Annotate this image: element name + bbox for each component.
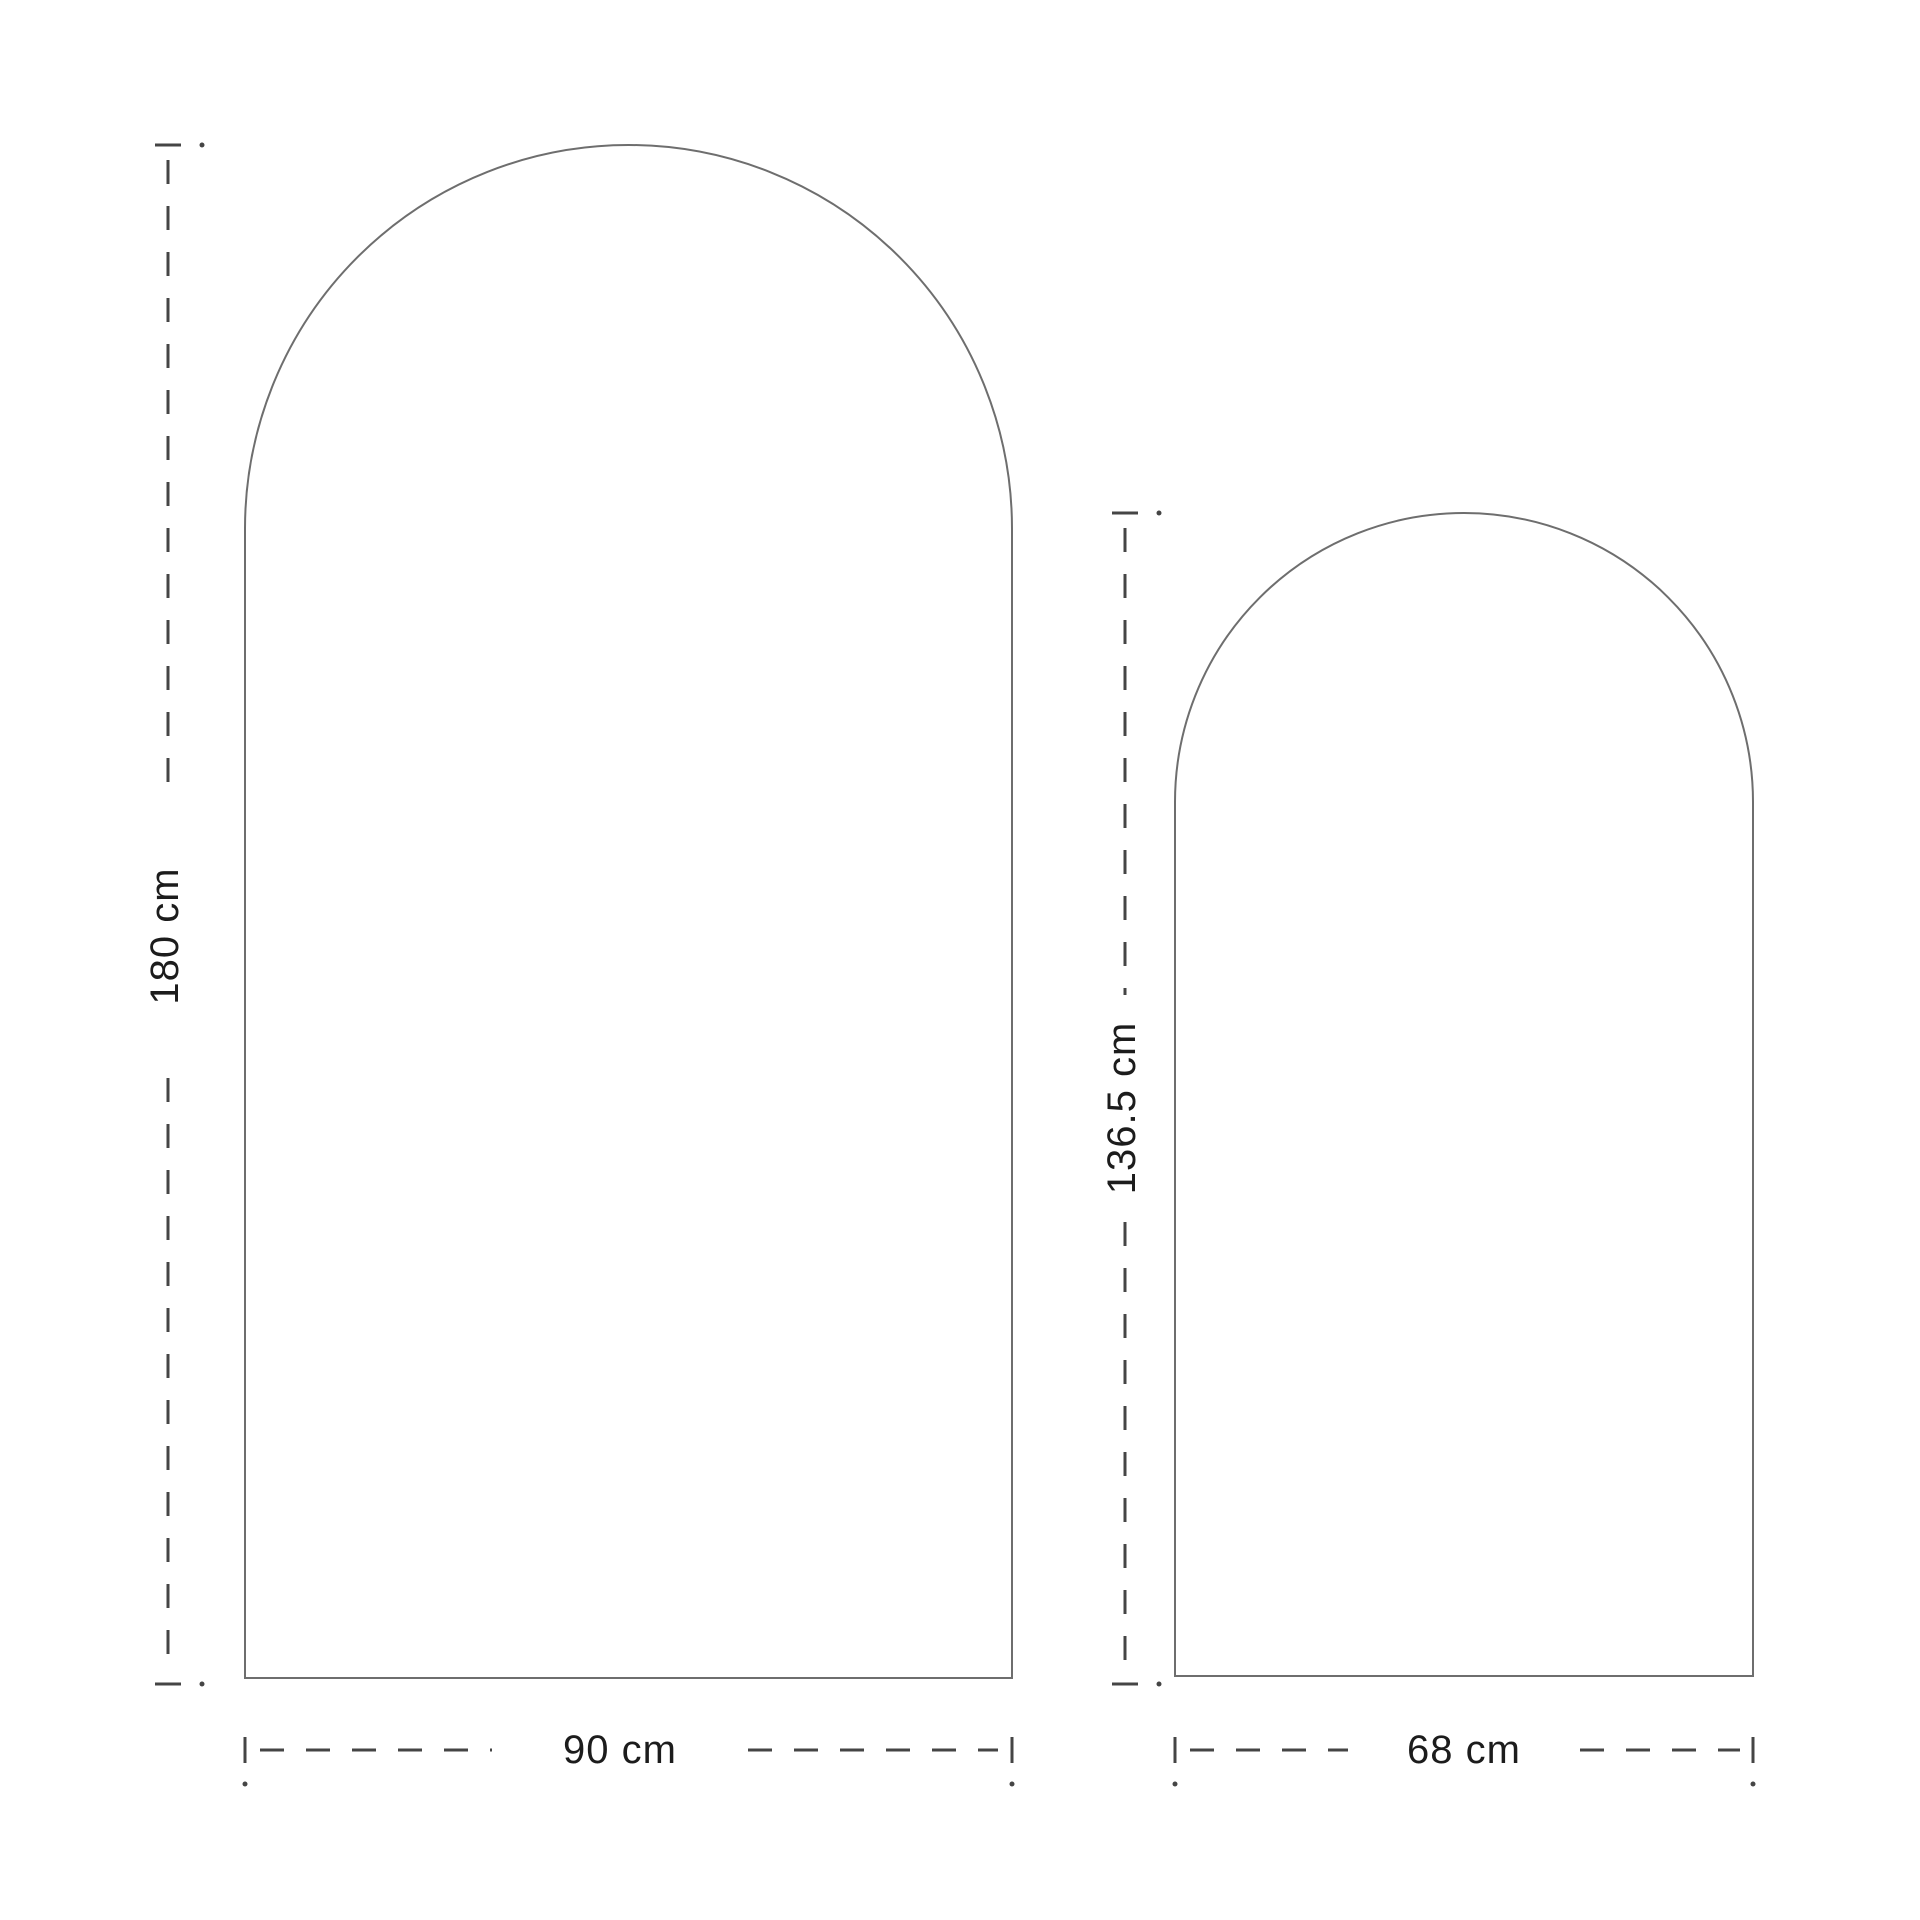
dim-cap-dot [1157, 1682, 1162, 1687]
diagram-svg: 180 cm 136.5 cm 90 cm [0, 0, 1920, 1920]
small-arch-height-dimension: 136.5 cm [1100, 511, 1162, 1687]
large-arch-width-dimension: 90 cm [243, 1728, 1015, 1787]
dim-cap-dot [243, 1782, 248, 1787]
dim-cap-dot [200, 143, 205, 148]
dimension-diagram: 180 cm 136.5 cm 90 cm [0, 0, 1920, 1920]
dim-cap-dot [1157, 511, 1162, 516]
large-arch-height-dimension: 180 cm [143, 143, 205, 1687]
small-arch-height-label: 136.5 cm [1100, 1022, 1144, 1195]
large-arch-width-label: 90 cm [563, 1728, 677, 1772]
dim-cap-dot [1751, 1782, 1756, 1787]
small-arch-width-dimension: 68 cm [1173, 1728, 1756, 1787]
small-arch-width-label: 68 cm [1407, 1728, 1521, 1772]
dim-cap-dot [200, 1682, 205, 1687]
large-arch-height-label: 180 cm [143, 867, 187, 1004]
dim-cap-dot [1010, 1782, 1015, 1787]
dim-cap-dot [1173, 1782, 1178, 1787]
small-arch-outline [1175, 513, 1753, 1676]
large-arch-outline [245, 145, 1012, 1678]
